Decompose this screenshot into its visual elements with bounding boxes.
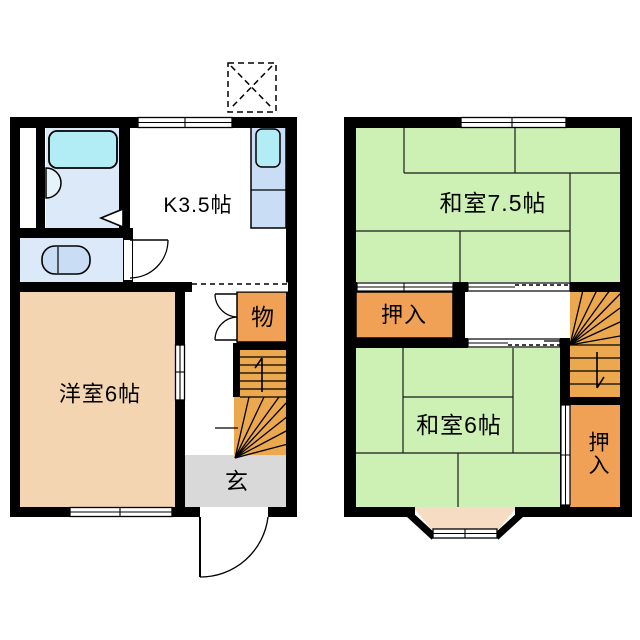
entrance-label: 玄: [225, 469, 249, 493]
western-room-label: 洋室6帖: [59, 382, 141, 405]
wall: [10, 117, 20, 517]
closet-lower-sliding-door: [561, 405, 570, 505]
window-bottom: [70, 508, 172, 517]
closet-upper-label: 押入: [381, 303, 427, 326]
window-top-2f: [461, 118, 566, 128]
wall: [344, 338, 468, 348]
wall: [620, 117, 632, 517]
closet-upper-sliding-door: [357, 283, 453, 291]
open-passage-kitchen-hall: [192, 283, 288, 292]
window-top: [138, 118, 232, 128]
kitchen-sink: [256, 129, 280, 167]
storage-label: 物: [251, 305, 275, 329]
floor-plan-page: K3.5帖 洋室6帖 物 玄 和室7.5帖 押入 和室6帖 押入: [0, 0, 640, 640]
bay-window-floor: [413, 507, 517, 529]
entrance-door-gap: [200, 507, 268, 517]
dashed-square-marker: [228, 63, 276, 112]
wall: [515, 507, 632, 517]
floor-plan-canvas: [0, 0, 640, 640]
wall: [10, 228, 133, 238]
kitchen-label: K3.5帖: [163, 195, 232, 217]
wall: [36, 128, 45, 228]
hall-sliding-door-bottom: [468, 339, 560, 347]
kitchen-sink-unit: [251, 123, 286, 228]
entrance-door: [200, 517, 268, 577]
hall-sliding-door-top: [468, 283, 570, 291]
wall: [286, 117, 297, 517]
wall: [175, 292, 185, 517]
wall: [10, 282, 192, 292]
wall: [344, 117, 356, 517]
toilet-door-gap: [124, 240, 132, 280]
closet-lower-label: 押入: [586, 431, 608, 477]
bathtub: [49, 131, 117, 168]
pipe-space: [20, 128, 36, 228]
toilet: [42, 246, 90, 274]
wall: [237, 342, 297, 350]
wall: [344, 282, 357, 292]
wall: [344, 507, 415, 517]
wall: [570, 397, 620, 405]
wall: [233, 343, 240, 397]
japanese-room-75-label: 和室7.5帖: [440, 191, 547, 215]
japanese-room-6-label: 和室6帖: [416, 413, 502, 437]
wall: [570, 282, 632, 292]
sliding-door-western-room: [176, 345, 185, 400]
